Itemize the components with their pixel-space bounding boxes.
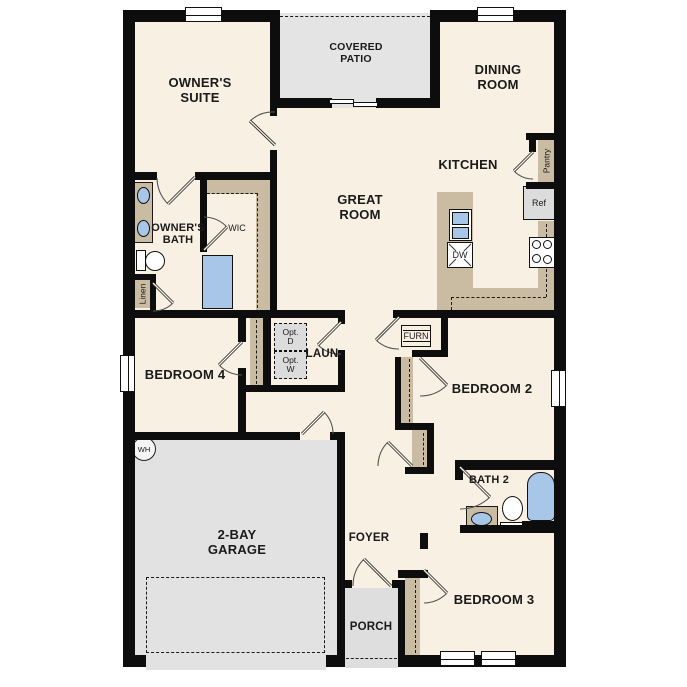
toilet2-bowl (502, 496, 523, 521)
wall-segment (455, 460, 566, 470)
wall-segment (238, 368, 246, 432)
bedroom3-label: BEDROOM 3 (454, 593, 535, 608)
kitchen-counter-bottom (437, 288, 554, 310)
garage-label: 2-BAY GARAGE (191, 528, 283, 557)
laundry-label: LAUN (306, 348, 339, 361)
porch-label: PORCH (350, 621, 393, 634)
bath-sink (137, 187, 150, 204)
linen-label: Linen (126, 278, 158, 310)
wall-segment (238, 318, 246, 342)
wic-label: WIC (228, 223, 246, 233)
dishwasher: DW (447, 242, 473, 268)
wall-segment (526, 133, 566, 140)
optional-dryer-label: Opt. D (279, 328, 303, 347)
bedroom3-closet (405, 578, 420, 655)
dashed-line (451, 297, 452, 310)
wall-segment (123, 655, 146, 667)
hall-linen-closet (412, 430, 427, 467)
wall-segment (412, 350, 448, 357)
dining-room-label: DINING ROOM (458, 63, 538, 92)
wall-segment (338, 318, 345, 324)
dashed-line (423, 433, 424, 465)
wall-segment (398, 570, 428, 578)
floor-plan: DW Ref Opt. D Opt. W FURN WH (0, 0, 687, 687)
bath2-label: BATH 2 (466, 474, 512, 486)
wall-segment (522, 521, 554, 529)
wall-segment (337, 580, 352, 588)
water-heater: WH (132, 437, 156, 461)
wall-segment (263, 318, 271, 385)
dashed-line (256, 320, 257, 384)
wall-segment (123, 432, 300, 440)
porch-edge-dashed (346, 658, 397, 659)
wall-segment (270, 98, 332, 108)
bedroom2-closet (401, 357, 413, 423)
refrigerator-label: Ref (532, 198, 546, 208)
dishwasher-label: DW (453, 250, 468, 260)
stove (529, 237, 555, 268)
wall-segment (395, 423, 434, 430)
window (120, 355, 135, 392)
wall-segment (337, 432, 345, 667)
dashed-line (207, 193, 258, 194)
shower (202, 255, 233, 309)
window (551, 370, 566, 407)
dashed-line (451, 297, 546, 298)
garage-apron (146, 655, 326, 670)
wall-segment (376, 98, 438, 108)
owners-bath-label: OWNER'S BATH (147, 222, 209, 247)
wic-shelf-right (256, 180, 270, 310)
refrigerator: Ref (523, 186, 555, 220)
garage-door-dashed (146, 577, 325, 653)
wall-segment (430, 13, 440, 108)
sliding-door-panel (353, 102, 378, 107)
wall-segment (270, 108, 277, 116)
wall-segment (398, 588, 405, 667)
toilet-bowl (145, 251, 165, 271)
owners-suite-label: OWNER'S SUITE (158, 76, 242, 105)
wall-segment (526, 182, 566, 189)
wall-segment (395, 357, 401, 423)
foyer-label: FOYER (349, 532, 390, 545)
wall-segment (270, 13, 280, 108)
dashed-line (415, 580, 416, 653)
patio-edge-dashed (280, 16, 430, 17)
stove-burner (543, 255, 552, 264)
furnace-label: FURN (403, 330, 430, 342)
window (477, 7, 514, 22)
stove-burner (532, 240, 541, 249)
wall-segment (135, 172, 157, 180)
stove-burner (532, 254, 541, 263)
wall-segment (393, 310, 566, 318)
dashed-line (409, 359, 410, 422)
window (440, 651, 475, 666)
wall-segment (123, 10, 135, 667)
kitchen-sink-basin (452, 227, 469, 239)
wall-segment (405, 467, 434, 474)
bedroom4-label: BEDROOM 4 (145, 368, 226, 383)
pantry-label: Pantry (530, 145, 562, 177)
water-heater-label: WH (138, 445, 151, 454)
wall-segment (123, 310, 345, 318)
optional-washer: Opt. W (274, 351, 307, 379)
sliding-door-panel (329, 99, 354, 104)
window (481, 651, 516, 666)
optional-dryer: Opt. D (274, 323, 307, 351)
wall-segment (338, 350, 345, 385)
wall-segment (420, 533, 428, 549)
bathtub (527, 472, 555, 521)
wall-segment (554, 10, 566, 667)
wall-segment (246, 385, 345, 392)
window (185, 7, 222, 22)
bedroom2-label: BEDROOM 2 (452, 382, 533, 397)
furnace: FURN (401, 325, 431, 347)
optional-washer-label: Opt. W (279, 356, 303, 375)
great-room-label: GREAT ROOM (320, 193, 400, 222)
dashed-line (257, 193, 258, 308)
bath2-sink (471, 512, 492, 526)
wall-segment (392, 580, 405, 588)
kitchen-sink-basin (452, 212, 469, 225)
wall-segment (455, 470, 463, 480)
kitchen-label: KITCHEN (438, 158, 497, 173)
wall-segment (195, 172, 277, 180)
covered-patio-label: COVERED PATIO (320, 42, 392, 66)
stove-burner (543, 240, 552, 249)
